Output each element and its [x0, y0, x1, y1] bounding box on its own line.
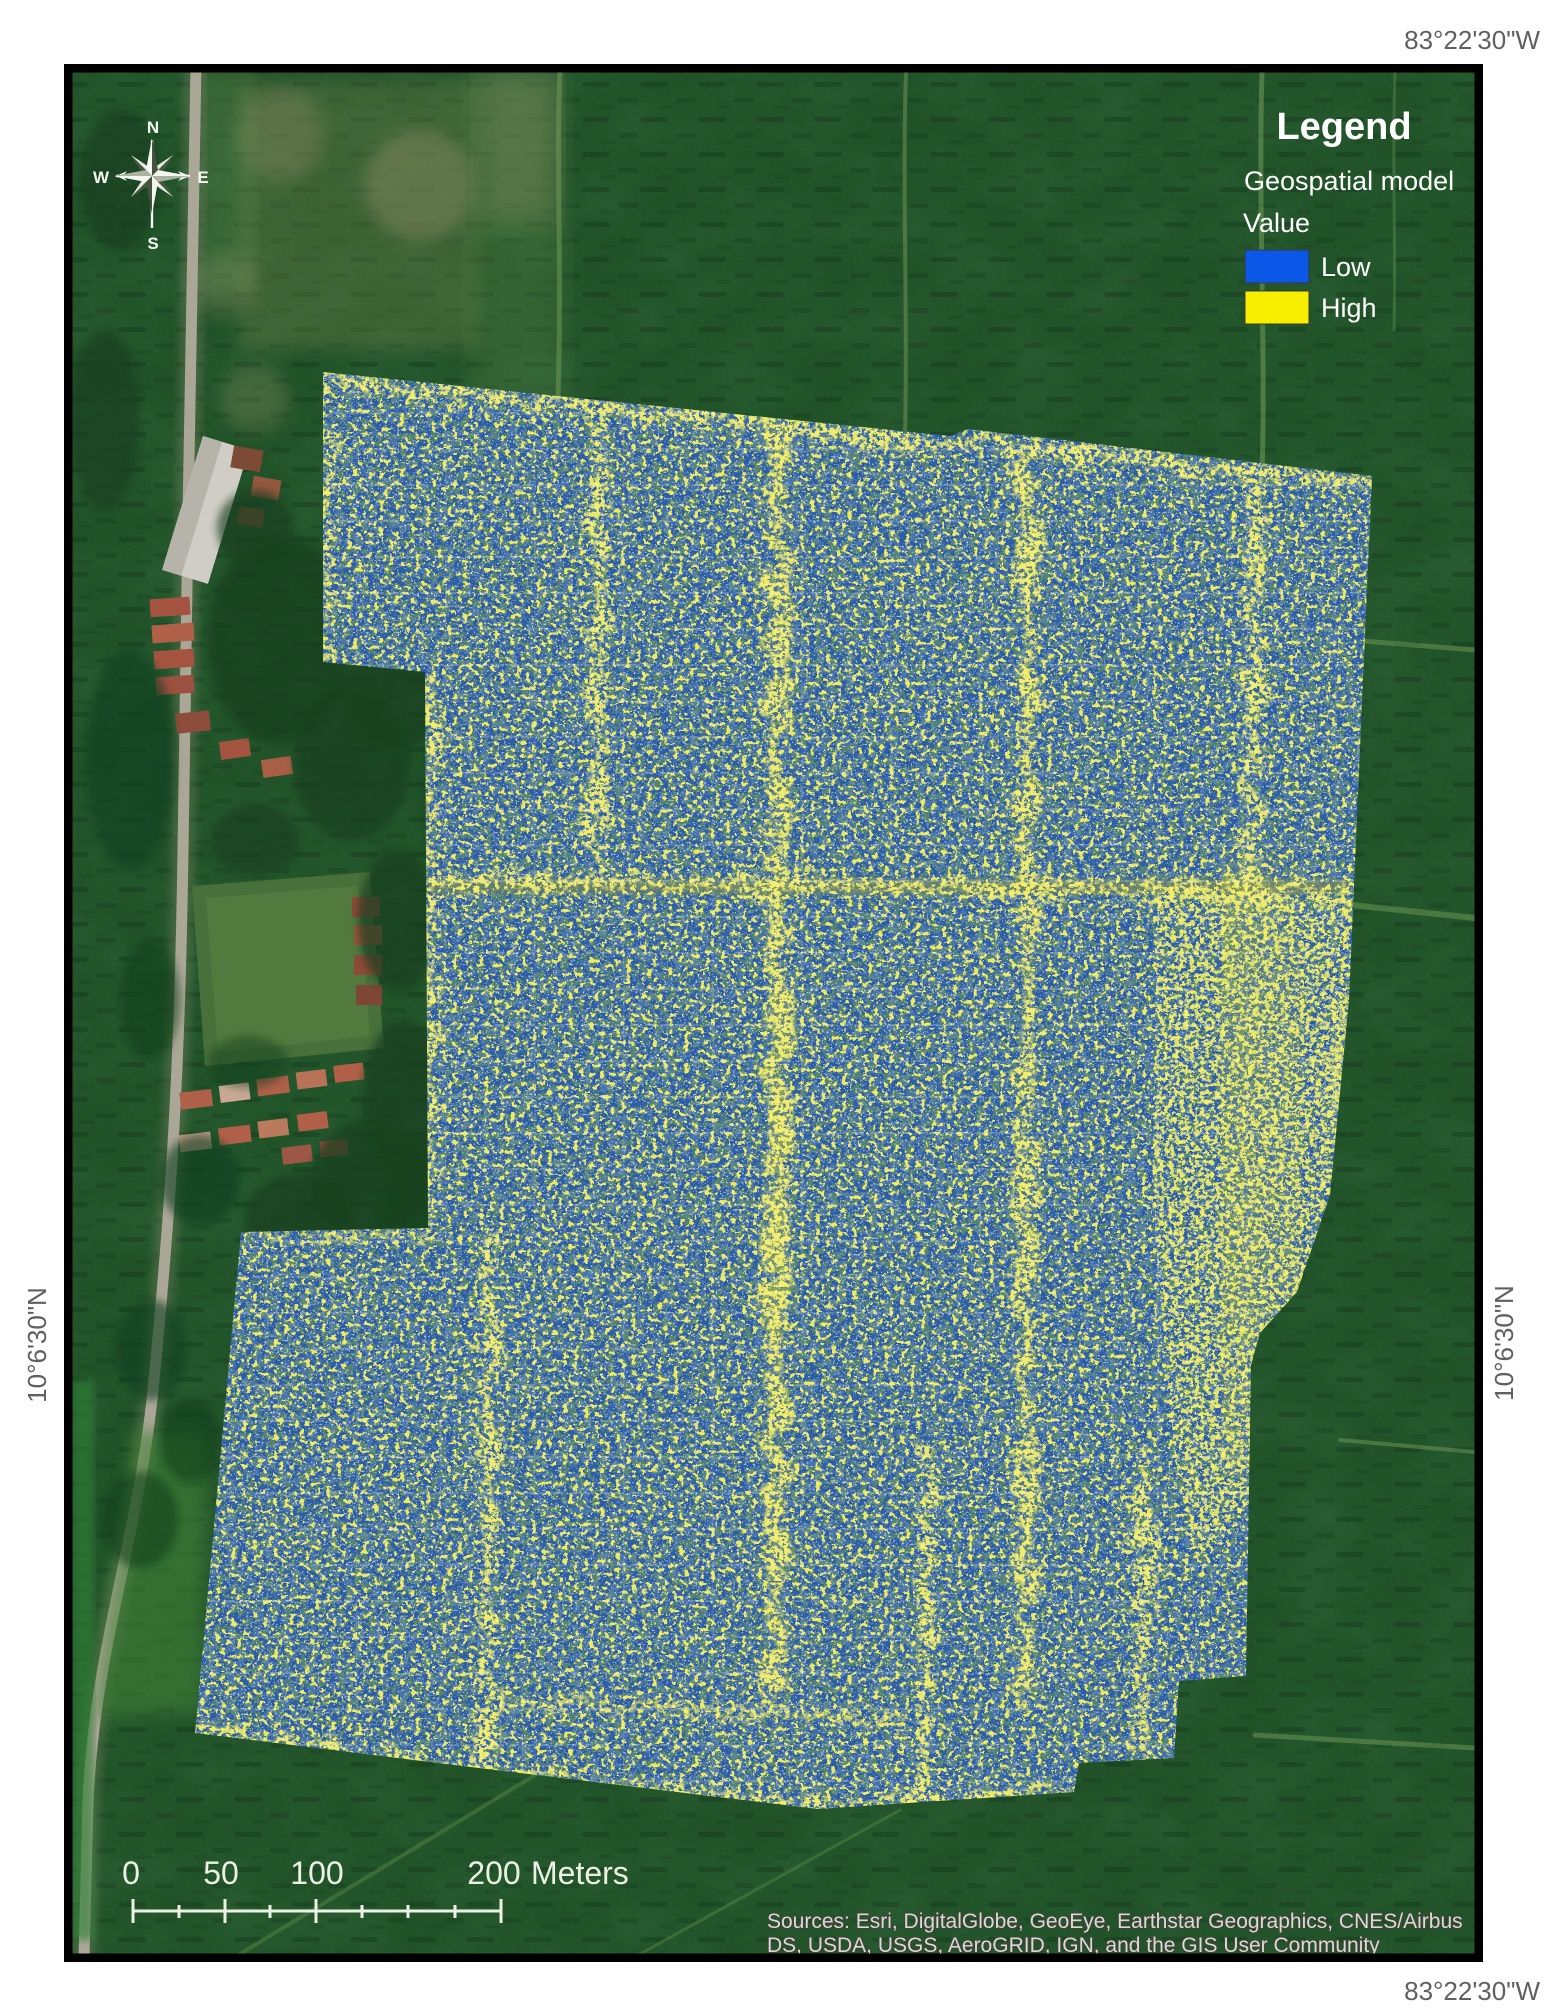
svg-text:50: 50 — [203, 1855, 239, 1891]
svg-text:0: 0 — [122, 1855, 140, 1891]
svg-text:High: High — [1321, 293, 1377, 323]
svg-text:Legend: Legend — [1276, 106, 1411, 148]
svg-text:E: E — [197, 168, 208, 187]
svg-text:Sources: Esri, DigitalGlobe, G: Sources: Esri, DigitalGlobe, GeoEye, Ear… — [767, 1910, 1463, 1933]
svg-text:Meters: Meters — [531, 1855, 629, 1891]
svg-text:N: N — [147, 118, 159, 137]
svg-text:W: W — [93, 168, 110, 187]
svg-text:200: 200 — [467, 1855, 520, 1891]
svg-text:Geospatial model: Geospatial model — [1244, 166, 1454, 196]
svg-text:Low: Low — [1321, 252, 1371, 282]
svg-text:S: S — [147, 234, 158, 253]
svg-text:100: 100 — [290, 1855, 343, 1891]
svg-text:Value: Value — [1243, 208, 1310, 238]
